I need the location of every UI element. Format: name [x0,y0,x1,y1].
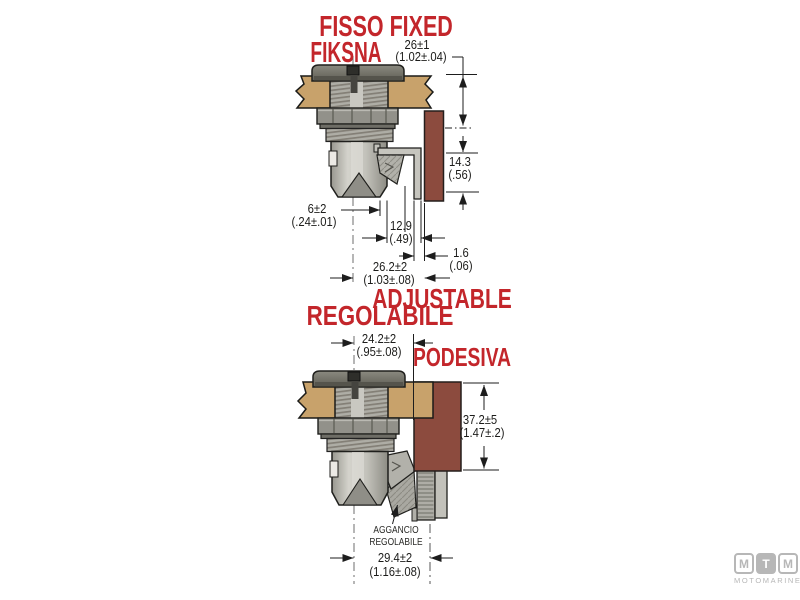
logo-boxes: M T M [734,553,798,574]
dim-29-4-in: (1.16±.08) [369,566,420,579]
keyway-slot-lower [352,381,359,399]
logo-box-m2: M [778,553,798,574]
logo-letter-m2: M [783,557,793,571]
dim-24-2-in: (.95±.08) [357,346,402,359]
keyway-slot [348,372,360,381]
dim-26-in: (1.02±.04) [395,51,446,64]
logo-letter-m1: M [739,557,749,571]
flange-shadow [314,76,402,81]
dim-37-2-mm: 37.2±5 [463,414,497,427]
catch-plate [425,111,444,201]
logo-motomarine-text: MOTOMARINE [734,576,798,585]
body-notch [329,151,337,166]
threaded-barrel-lower [326,129,393,142]
dim-24-2-mm: 24.2±2 [362,333,396,346]
dim-37-2-in: (1.47±.2) [460,427,505,440]
logo-letter-t: T [762,557,769,571]
dim-1-6-in: (.06) [449,260,472,273]
keyway-slot-lower [351,75,358,93]
label-aggancio-line2: REGOLABILE [369,537,422,548]
threaded-barrel-lower [327,439,394,452]
logo-mtm: M T M MOTOMARINE [734,553,798,585]
logo-box-t: T [756,553,776,574]
diagram-page: { "labels": { "fisso_fixed": "FISSO FIXE… [0,0,800,600]
flange-shadow [315,382,403,387]
label-fiksna: FIKSNA [310,39,381,68]
dim-6-in: (.24±.01) [292,216,337,229]
rod-foot [412,508,417,521]
dim-12-9-in: (.49) [389,233,412,246]
washer [320,124,395,129]
fixed-lock-drawing [296,56,444,283]
label-regolabile: REGOLABILE [307,302,454,330]
dim-29-4-mm: 29.4±2 [378,552,412,565]
dim-14-3-in: (.56) [448,169,471,182]
washer [321,434,396,439]
body-notch [330,461,338,477]
dim-14-3-mm: 14.3 [449,156,471,169]
logo-box-m1: M [734,553,754,574]
label-podesiva: PODESIVA [413,344,511,370]
label-aggancio-line1: AGGANCIO [373,525,418,536]
